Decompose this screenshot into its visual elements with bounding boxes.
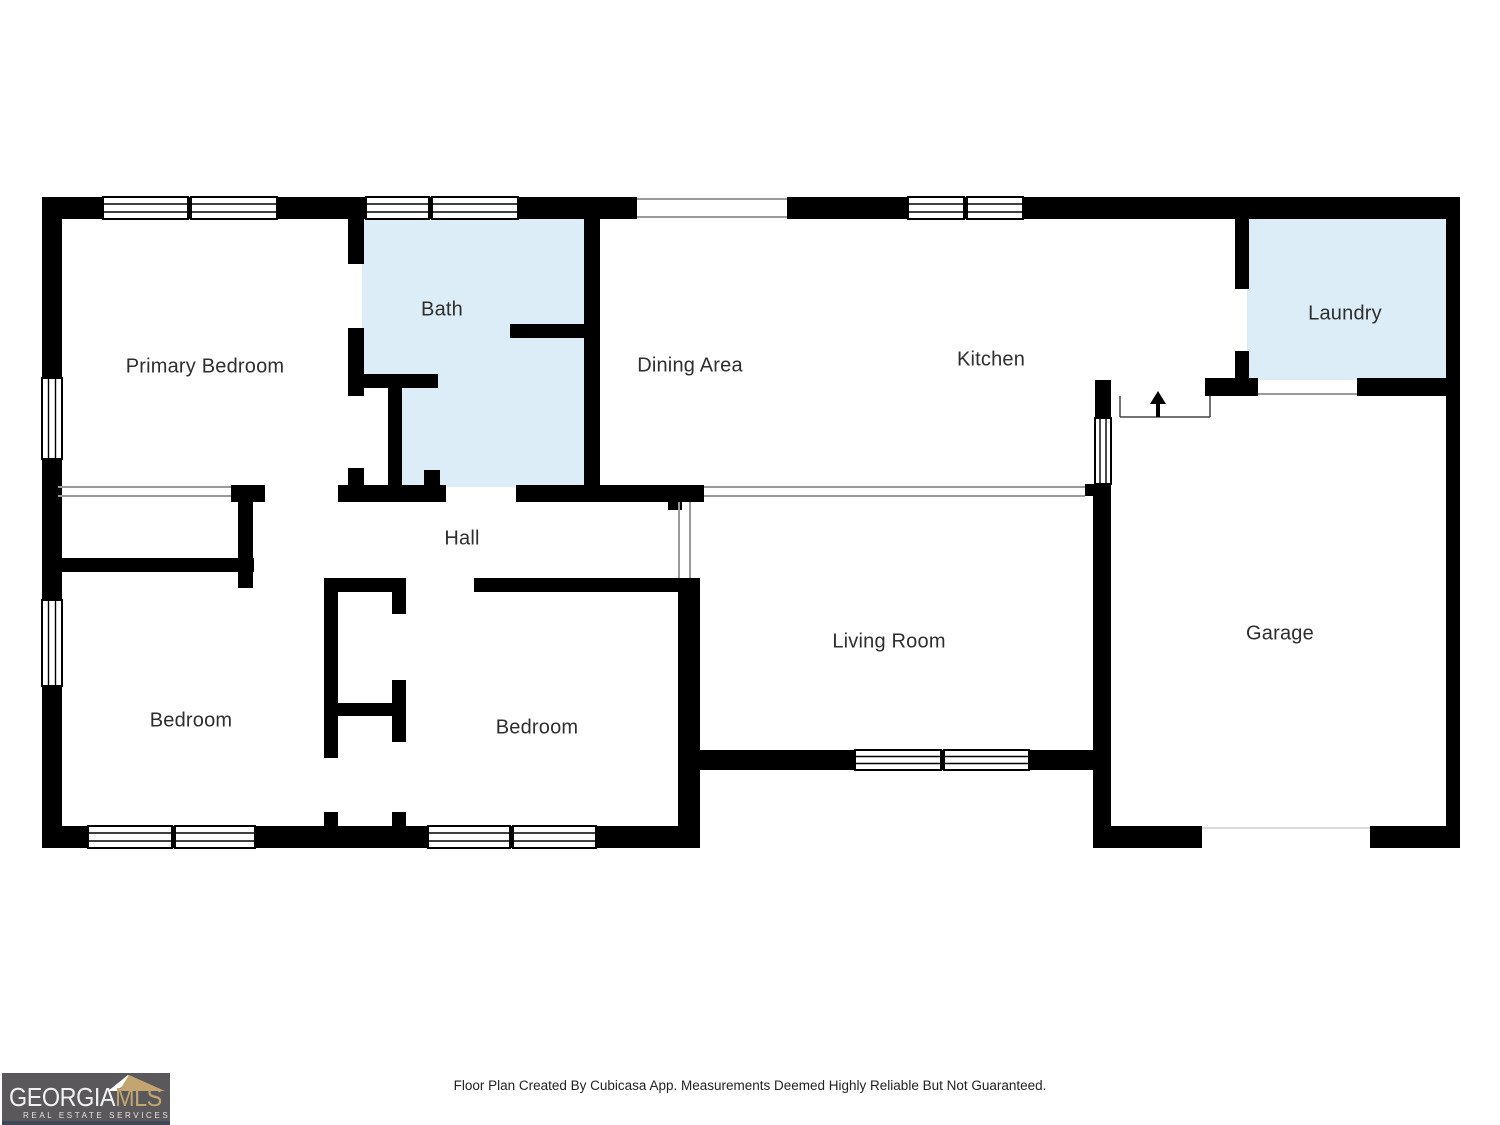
wall-segment (1357, 378, 1446, 396)
wall-segment (348, 215, 364, 264)
room-label-primary-bedroom: Primary Bedroom (126, 356, 285, 379)
wall-segment (42, 197, 62, 848)
wall-segment (388, 388, 402, 488)
wall-segment (516, 485, 704, 502)
wall-segment (238, 485, 253, 588)
window (42, 378, 62, 459)
logo-bottom-strip (2, 1121, 170, 1125)
laundry-floor (1247, 215, 1446, 380)
window (103, 197, 188, 219)
window (908, 197, 964, 219)
georgia-mls-logo: GEORGIAMLS REAL ESTATE SERVICES (2, 1073, 170, 1125)
wet-room-fills (362, 215, 1446, 488)
wall-segment (678, 578, 700, 848)
window (191, 197, 277, 219)
bath-closet-floor (362, 388, 388, 488)
room-label-kitchen: Kitchen (957, 349, 1025, 372)
logo-brand-text: GEORGIAMLS (9, 1082, 162, 1113)
entry-arrow-icon (1150, 391, 1166, 417)
window (366, 197, 429, 219)
window (175, 826, 255, 848)
disclaimer-text: Floor Plan Created By Cubicasa App. Meas… (0, 1078, 1500, 1093)
dining-opening (637, 197, 787, 219)
wall-segment (1095, 380, 1111, 418)
wall-segment (42, 558, 254, 572)
room-label-bedroom-left: Bedroom (150, 710, 233, 733)
entry-steps (1120, 396, 1210, 417)
wall-segment (348, 374, 438, 388)
room-label-living-room: Living Room (832, 631, 945, 654)
wall-segment (1205, 378, 1258, 396)
wall-segment (338, 485, 446, 502)
floor-plan-page: Primary Bedroom Bath Dining Area Kitchen… (0, 0, 1500, 1125)
window (428, 826, 510, 848)
wall-segment (1093, 484, 1111, 848)
window (432, 197, 518, 219)
window (88, 826, 172, 848)
wall-segment (324, 812, 338, 848)
wall-segment (1085, 484, 1111, 496)
wall-segment (510, 324, 586, 338)
window (855, 750, 941, 770)
wall-segment (324, 703, 406, 716)
room-label-garage: Garage (1246, 623, 1314, 646)
wall-segment (584, 215, 600, 502)
room-label-bath: Bath (421, 299, 463, 322)
window (513, 826, 596, 848)
room-label-hall: Hall (444, 528, 479, 551)
wall-segment (1235, 351, 1249, 380)
logo-georgia-text: GEORGIA (9, 1082, 115, 1112)
floor-plan-drawing (0, 0, 1500, 1125)
window (967, 197, 1023, 219)
window (42, 600, 62, 686)
window (1095, 418, 1111, 484)
wall-segment (1446, 197, 1460, 848)
wall-segment (392, 578, 406, 614)
window (944, 750, 1029, 770)
logo-tagline-text: REAL ESTATE SERVICES (23, 1111, 170, 1120)
wall-segment (1235, 215, 1249, 289)
wall-segment (324, 578, 338, 758)
garage-door-opening (1202, 826, 1370, 848)
wall-segment (474, 578, 678, 592)
logo-mls-text: MLS (115, 1082, 162, 1112)
room-label-bedroom-middle: Bedroom (496, 717, 579, 740)
room-label-dining-area: Dining Area (637, 355, 743, 378)
wall-segment (392, 812, 406, 848)
room-label-laundry: Laundry (1308, 303, 1382, 326)
